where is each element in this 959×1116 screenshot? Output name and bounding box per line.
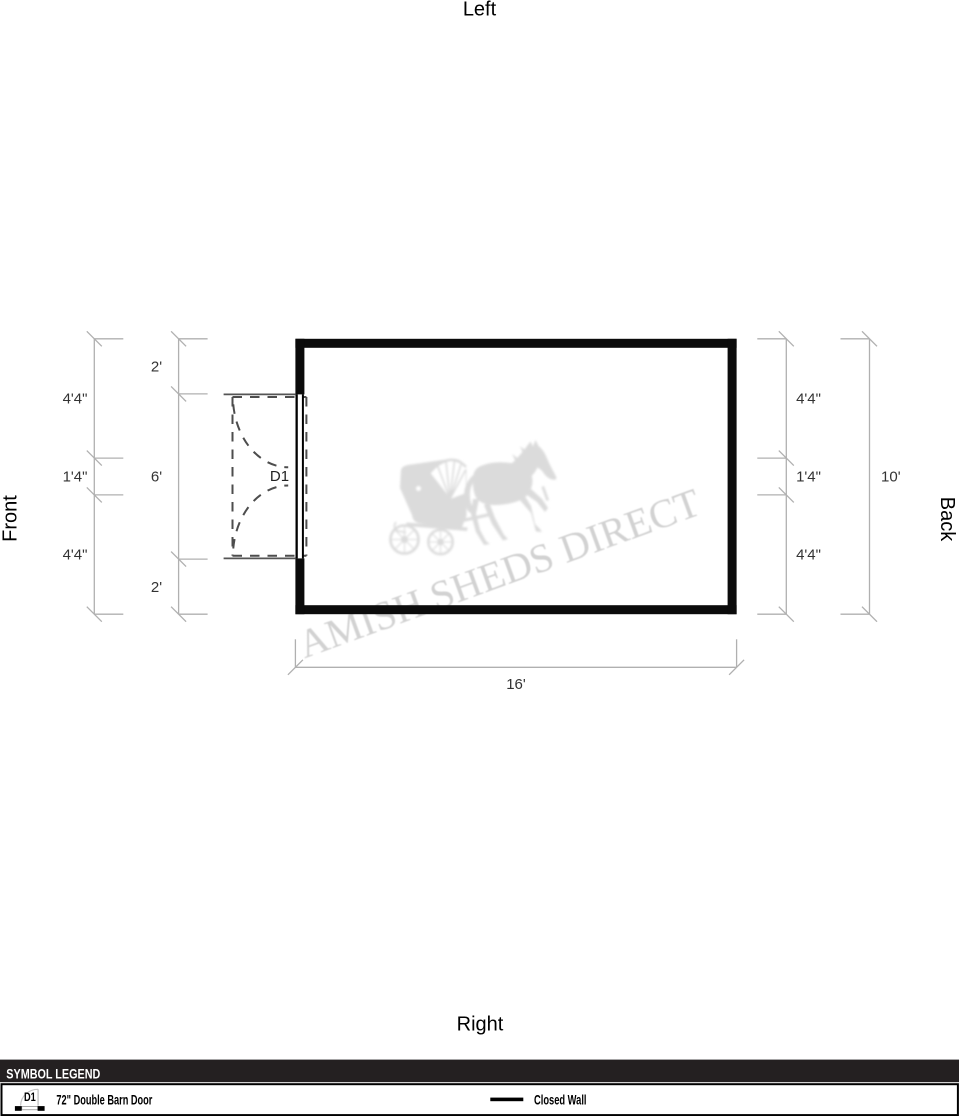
svg-text:SYMBOL LEGEND: SYMBOL LEGEND bbox=[6, 1066, 100, 1082]
svg-text:D1: D1 bbox=[24, 1090, 36, 1104]
svg-text:4'4": 4'4" bbox=[63, 391, 88, 408]
svg-text:16': 16' bbox=[506, 676, 526, 693]
svg-text:1'4": 1'4" bbox=[63, 469, 88, 486]
svg-text:Front: Front bbox=[0, 495, 22, 542]
svg-text:4'4": 4'4" bbox=[63, 547, 88, 564]
svg-text:72" Double Barn Door: 72" Double Barn Door bbox=[56, 1093, 153, 1108]
svg-text:Closed Wall: Closed Wall bbox=[534, 1093, 587, 1108]
svg-text:2': 2' bbox=[151, 359, 162, 376]
svg-text:D1: D1 bbox=[270, 468, 289, 485]
svg-text:10': 10' bbox=[881, 469, 901, 486]
svg-text:6': 6' bbox=[151, 469, 162, 486]
svg-text:Left: Left bbox=[463, 0, 497, 21]
svg-text:4'4": 4'4" bbox=[796, 547, 821, 564]
svg-text:2': 2' bbox=[151, 579, 162, 596]
svg-text:4'4": 4'4" bbox=[796, 391, 821, 408]
svg-text:Right: Right bbox=[457, 1014, 504, 1036]
svg-text:Back: Back bbox=[936, 497, 958, 542]
svg-text:1'4": 1'4" bbox=[796, 469, 821, 486]
